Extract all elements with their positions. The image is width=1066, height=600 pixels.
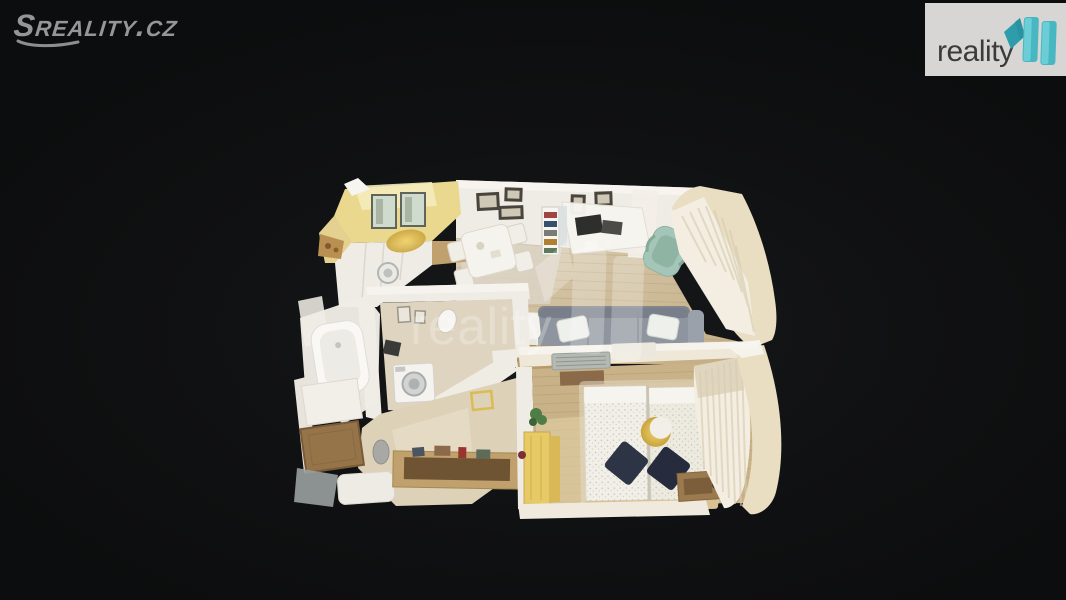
cabinet-glass-door	[372, 195, 396, 228]
monitor	[575, 214, 603, 235]
tour-viewport[interactable]: reality Sreality.cz reality	[0, 0, 1066, 600]
reality11-mark-icon	[1003, 15, 1059, 65]
entry-door	[300, 421, 364, 473]
wardrobe	[524, 432, 560, 504]
bookshelf	[542, 207, 559, 255]
air-conditioner	[552, 352, 611, 370]
vase	[373, 440, 389, 464]
cabinet-glass-door	[401, 193, 425, 226]
white-door-panel	[301, 378, 362, 425]
sreality-logo-text: Sreality.cz	[12, 10, 179, 41]
watermark-text: reality	[410, 298, 552, 356]
reality11-logo-badge: reality	[925, 3, 1066, 76]
laptop	[601, 220, 622, 235]
sreality-logo: Sreality.cz	[14, 10, 178, 48]
hallway-bench	[337, 471, 395, 505]
floorplan-3d-dollhouse: reality	[0, 0, 1066, 600]
sofa-pillow	[646, 314, 679, 341]
washing-machine	[393, 363, 435, 403]
